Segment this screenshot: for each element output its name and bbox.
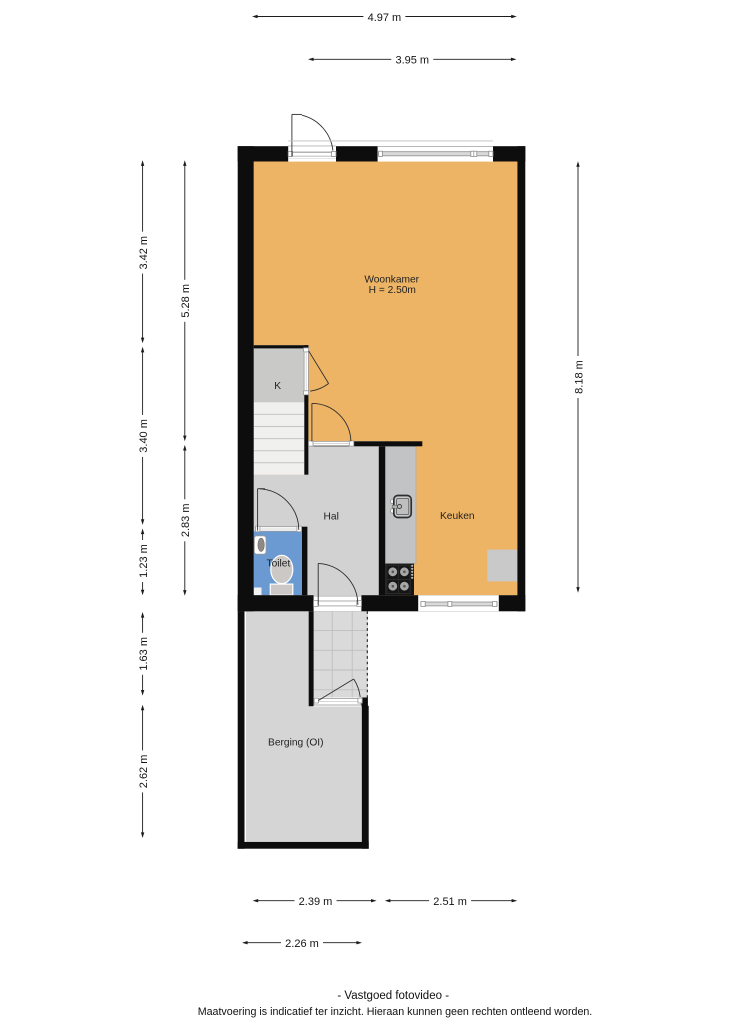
svg-text:H = 2.50m: H = 2.50m: [369, 285, 416, 296]
svg-text:Maatvoering is indicatief ter: Maatvoering is indicatief ter inzicht. H…: [198, 1006, 593, 1018]
svg-text:4.97 m: 4.97 m: [368, 12, 402, 24]
svg-text:2.26 m: 2.26 m: [285, 938, 319, 950]
svg-text:2.39 m: 2.39 m: [299, 896, 333, 908]
svg-text:3.42 m: 3.42 m: [138, 236, 150, 270]
svg-text:2.83 m: 2.83 m: [180, 503, 192, 537]
svg-text:2.51 m: 2.51 m: [433, 896, 467, 908]
svg-text:Hal: Hal: [324, 511, 339, 522]
svg-text:3.40 m: 3.40 m: [138, 419, 150, 453]
svg-text:Berging (OI): Berging (OI): [268, 738, 323, 749]
svg-text:Toilet: Toilet: [267, 559, 291, 570]
svg-text:5.28 m: 5.28 m: [180, 284, 192, 318]
svg-text:3.95 m: 3.95 m: [395, 55, 429, 67]
svg-text:1.63 m: 1.63 m: [138, 637, 150, 671]
svg-text:Keuken: Keuken: [440, 511, 475, 522]
svg-text:K: K: [274, 381, 281, 392]
svg-text:Woonkamer: Woonkamer: [364, 275, 419, 286]
svg-text:- Vastgoed fotovideo -: - Vastgoed fotovideo -: [337, 990, 449, 1002]
svg-text:8.18 m: 8.18 m: [573, 360, 585, 394]
svg-text:2.62 m: 2.62 m: [138, 755, 150, 789]
svg-text:1.23 m: 1.23 m: [138, 544, 150, 578]
